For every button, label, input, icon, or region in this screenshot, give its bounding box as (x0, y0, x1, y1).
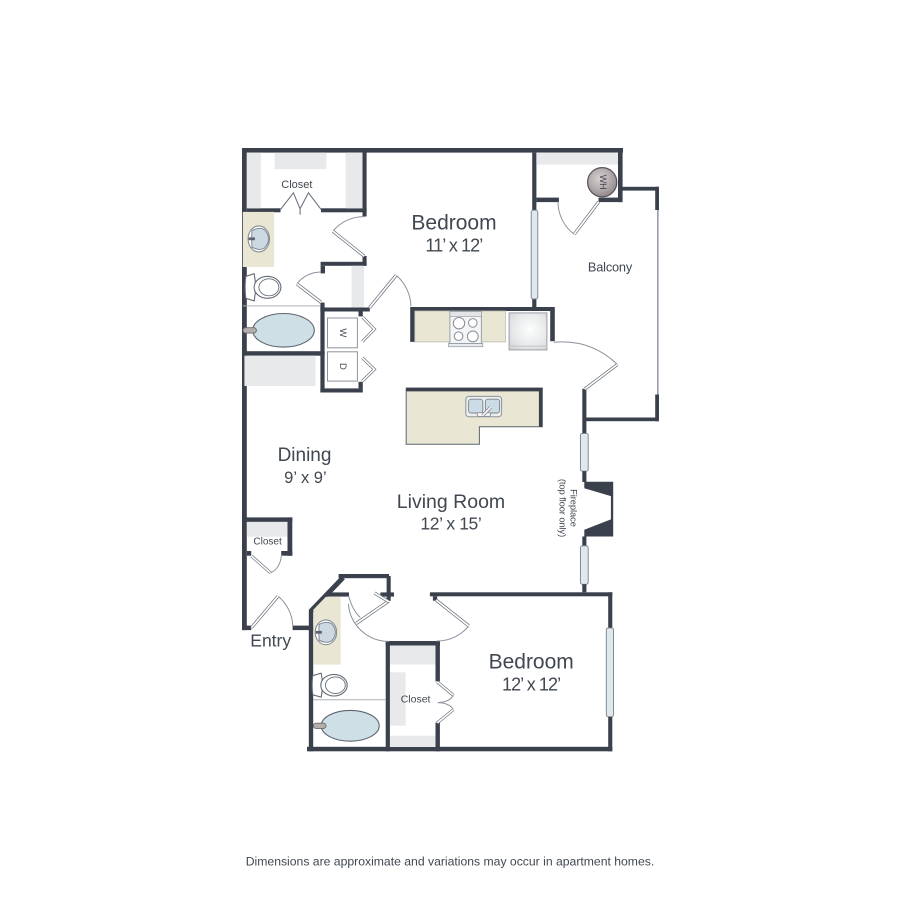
svg-text:Fireplace: Fireplace (569, 489, 580, 527)
svg-text:Bedroom: Bedroom (411, 212, 496, 235)
svg-text:Closet: Closet (253, 536, 282, 547)
svg-text:11’ x 12’: 11’ x 12’ (425, 236, 482, 256)
svg-text:12’ x 12’: 12’ x 12’ (502, 675, 560, 695)
svg-text:Dining: Dining (278, 445, 332, 466)
svg-text:WH: WH (598, 175, 608, 190)
svg-text:9’ x 9’: 9’ x 9’ (284, 469, 327, 487)
svg-text:W: W (337, 328, 348, 337)
svg-text:Living Room: Living Room (397, 491, 505, 513)
svg-text:Dimensions are approximate and: Dimensions are approximate and variation… (246, 855, 654, 869)
svg-text:Bedroom: Bedroom (489, 651, 574, 674)
svg-text:Entry: Entry (250, 631, 291, 651)
svg-text:Balcony: Balcony (588, 260, 633, 275)
svg-text:12’ x 15’: 12’ x 15’ (420, 514, 481, 534)
svg-text:Closet: Closet (281, 179, 312, 191)
svg-text:(top floor only): (top floor only) (558, 479, 569, 537)
svg-text:D: D (337, 363, 348, 370)
svg-text:Closet: Closet (401, 694, 431, 706)
